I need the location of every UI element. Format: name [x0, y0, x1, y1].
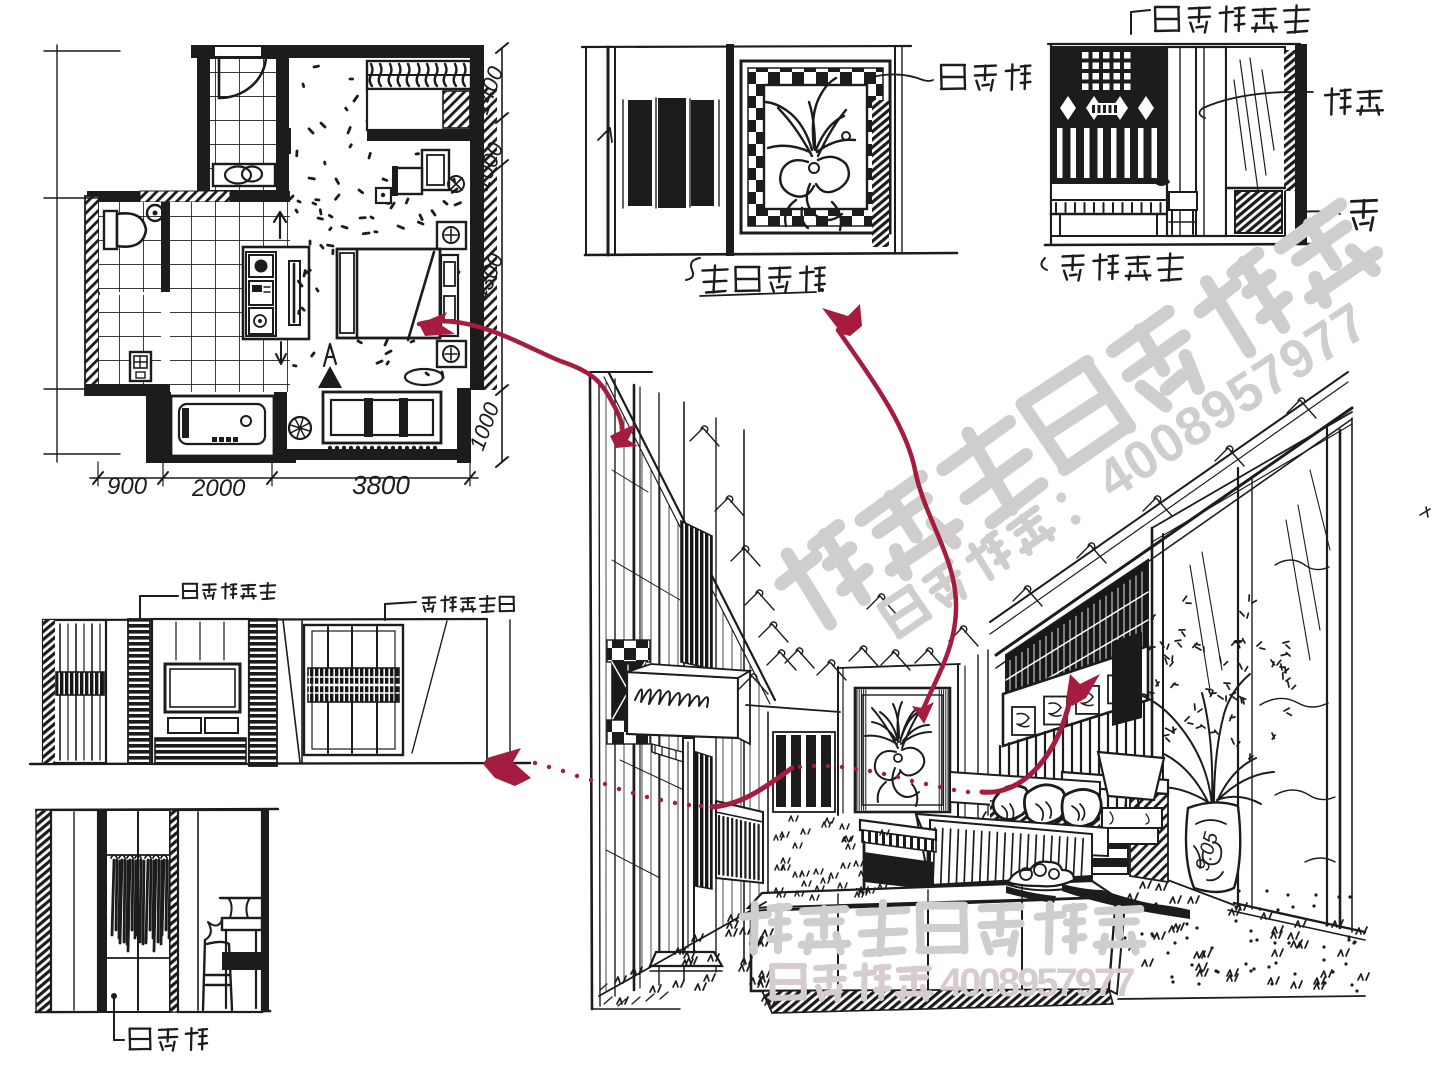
svg-text:2000: 2000 [191, 475, 246, 502]
svg-text:3800: 3800 [352, 470, 410, 500]
svg-text:900: 900 [107, 473, 148, 500]
svg-text:4008957977: 4008957977 [940, 961, 1134, 1005]
